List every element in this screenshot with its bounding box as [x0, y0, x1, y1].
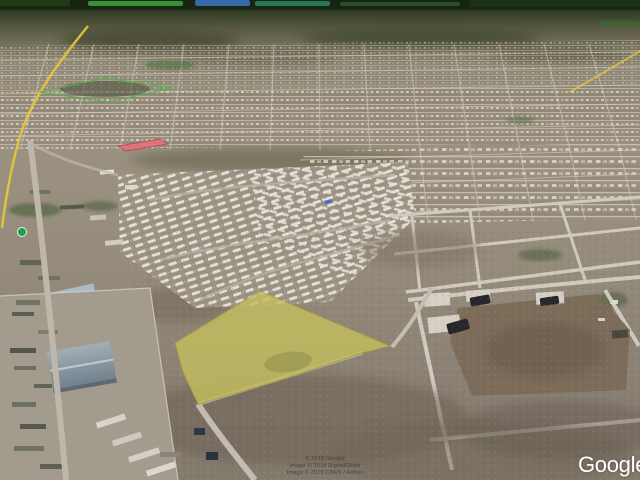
map-attribution: © 2018 Google Image © 2018 DigitalGlobe …	[250, 456, 400, 477]
google-logo: Google	[578, 452, 640, 478]
green-lot-interior	[60, 81, 150, 97]
highway-marker[interactable]	[18, 228, 27, 237]
map-viewport[interactable]: © 2018 Google Image © 2018 DigitalGlobe …	[0, 0, 640, 480]
satellite-imagery	[0, 0, 640, 480]
attribution-line: Image © 2018 CNES / Airbus	[250, 470, 400, 477]
